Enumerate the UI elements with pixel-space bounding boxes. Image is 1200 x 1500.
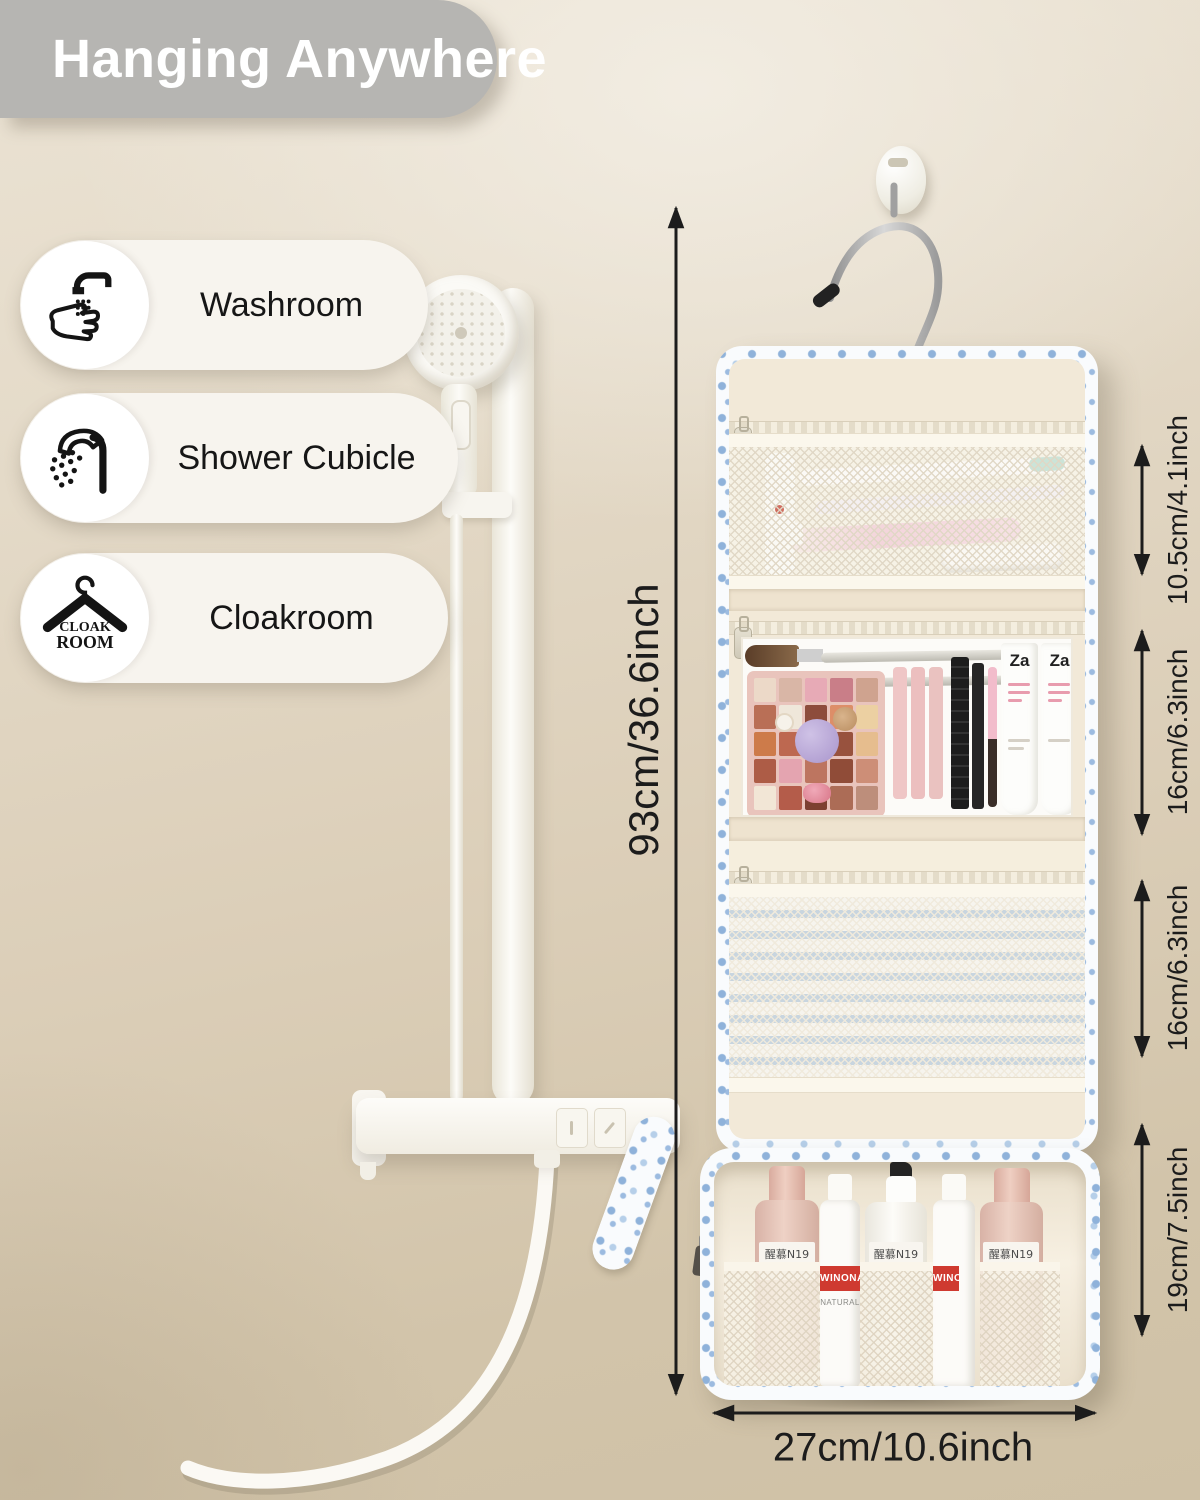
pump-head (942, 1174, 966, 1202)
wall-hook-slot (888, 158, 908, 167)
fold-seam (729, 817, 1085, 841)
brow-pen-lower (988, 739, 997, 807)
section-top-label: 10.5cm/4.1inch (1162, 415, 1194, 605)
palette-shade (779, 759, 801, 783)
palette-shade (754, 759, 776, 783)
panel-band (729, 841, 1085, 871)
palette-shade (754, 786, 776, 810)
room-text: ROOM (56, 632, 114, 652)
brow-pen-upper (988, 667, 997, 741)
location-pill-shower-cubicle: Shower Cubicle (20, 393, 458, 523)
eyeshadow-palette (747, 671, 885, 817)
sticker-strawberry (803, 783, 831, 803)
clear-cosmetics-pocket: Za Za (741, 637, 1073, 817)
lipstick-tube (929, 667, 943, 799)
makeup-brush-ferrule (797, 649, 823, 662)
section-middle-label: 16cm/6.3inch (1162, 649, 1194, 816)
za-cream-tube: Za (1001, 643, 1038, 815)
shower-head-center (455, 327, 467, 339)
eyeliner-pencil (972, 663, 984, 809)
eyeliner-pencil (951, 657, 969, 809)
organizer-roll-front: Za Za (729, 359, 1085, 1139)
palette-shade (779, 786, 801, 810)
palette-shade (754, 678, 776, 702)
palette-shade (856, 732, 878, 756)
pump-head (828, 1174, 852, 1202)
mesh-texture (729, 447, 1085, 575)
location-label: Shower Cubicle (149, 439, 458, 478)
striped-mesh-pocket (729, 897, 1085, 1077)
za-logo: Za (1041, 651, 1073, 671)
palette-shade (830, 678, 852, 702)
pump-brand-label: WINONA (820, 1266, 860, 1291)
banner-title: Hanging Anywhere (0, 28, 547, 90)
section-bottom-label: 19cm/7.5inch (1162, 1147, 1194, 1314)
palette-shade (856, 705, 878, 729)
total-height-label: 93cm/36.6inch (620, 583, 668, 856)
shower-hose-vertical (450, 514, 463, 1102)
bottom-compartment-interior: 醒慕N19 醒慕N19 醒慕N19 WINONA NATURAL WINONA (714, 1162, 1086, 1386)
za-logo: Za (1001, 651, 1038, 671)
hanger-icon: CLOAK ROOM (21, 554, 149, 682)
palette-shade (779, 678, 801, 702)
palette-shade (830, 786, 852, 810)
shower-bar-spout (360, 1162, 376, 1180)
mesh-binding (729, 1077, 1085, 1093)
palette-shade (754, 705, 776, 729)
sticker-bear (833, 707, 857, 731)
location-label: Washroom (149, 286, 428, 325)
zipper-clear-pocket (729, 621, 1085, 635)
bottle-brand-text: 醒慕N19 (989, 1248, 1033, 1261)
width-label: 27cm/10.6inch (773, 1426, 1033, 1471)
white-pump-bottle: WINONA (933, 1200, 975, 1386)
mesh-texture (729, 897, 1085, 1077)
handwash-icon (21, 241, 149, 369)
sticker-round (795, 719, 839, 763)
shower-bar-button (594, 1108, 626, 1148)
makeup-brush-bristles (745, 645, 799, 667)
palette-shade (856, 678, 878, 702)
lipstick-tube (893, 667, 907, 799)
shower-rail (492, 288, 534, 1106)
bottom-compartment: 醒慕N19 醒慕N19 醒慕N19 WINONA NATURAL WINONA (700, 1148, 1100, 1400)
white-pump-bottle: WINONA NATURAL (820, 1200, 860, 1386)
top-mesh-pocket (729, 447, 1085, 575)
fold-seam (729, 589, 1085, 611)
palette-shade (856, 786, 878, 810)
location-pill-cloakroom: CLOAK ROOM Cloakroom (20, 553, 448, 683)
palette-shade (805, 678, 827, 702)
lipstick-tube (911, 667, 925, 799)
pump-sub-label: NATURAL (820, 1298, 860, 1307)
shower-bar-button (556, 1108, 588, 1148)
inner-mesh-pocket (857, 1262, 933, 1386)
location-pill-washroom: Washroom (20, 240, 428, 370)
za-cream-tube: Za (1041, 643, 1073, 815)
bottle-brand-text: 醒慕N19 (765, 1248, 809, 1261)
palette-shade (856, 759, 878, 783)
location-label: Cloakroom (149, 599, 448, 638)
organizer-roll: Za Za (716, 346, 1098, 1152)
sticker-flower (777, 715, 792, 730)
shower-bar-hose-link (534, 1150, 560, 1168)
inner-mesh-pocket (980, 1262, 1060, 1386)
palette-shade (830, 759, 852, 783)
inner-mesh-pocket (724, 1262, 820, 1386)
shower-icon (21, 394, 149, 522)
wall-hook-mount (876, 146, 926, 214)
section-lower-label: 16cm/6.3inch (1162, 885, 1194, 1052)
banner: Hanging Anywhere (0, 0, 497, 118)
bottle-brand-text: 醒慕N19 (874, 1248, 918, 1261)
palette-shade (754, 732, 776, 756)
pump-brand-label: WINONA (933, 1266, 959, 1291)
product-infographic: Za Za (0, 0, 1200, 1500)
